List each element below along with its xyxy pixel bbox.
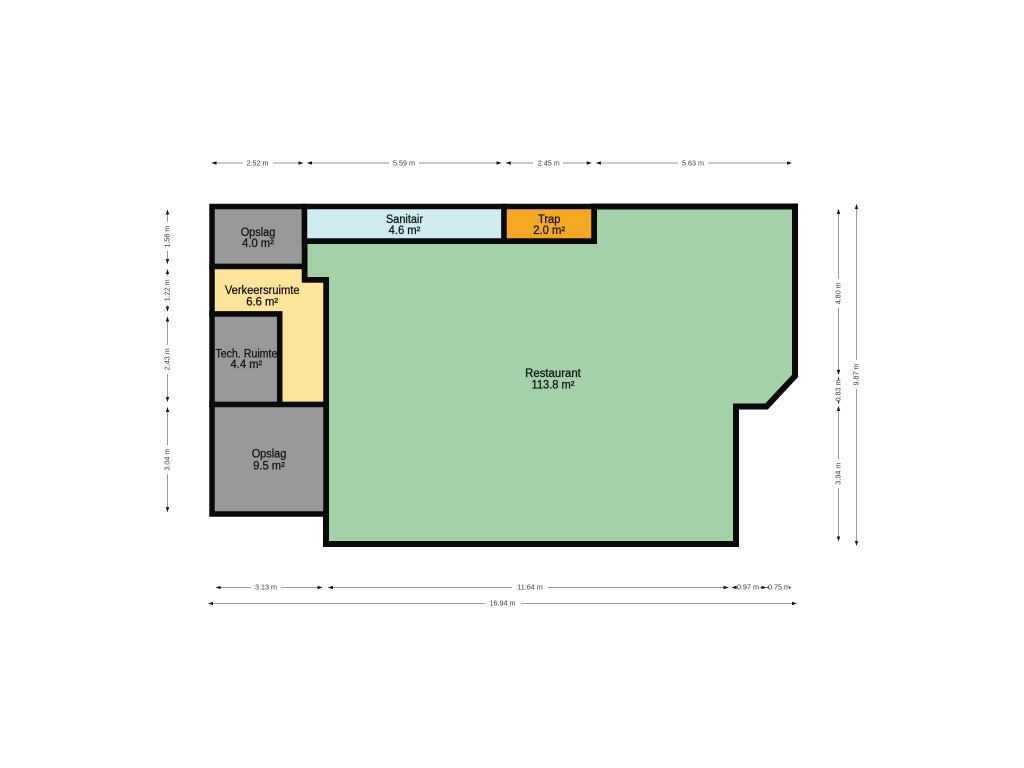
svg-text:0.83 m: 0.83 m xyxy=(834,379,843,401)
svg-text:113.8 m²: 113.8 m² xyxy=(532,380,575,392)
svg-text:Opslag: Opslag xyxy=(252,449,287,461)
svg-text:2.0 m²: 2.0 m² xyxy=(533,225,565,237)
svg-text:1.58 m: 1.58 m xyxy=(163,226,172,248)
svg-text:Restaurant: Restaurant xyxy=(525,368,581,380)
svg-text:1.22 m: 1.22 m xyxy=(163,279,172,301)
svg-text:9.5 m²: 9.5 m² xyxy=(253,460,285,472)
svg-text:5.63 m: 5.63 m xyxy=(682,159,704,168)
svg-text:2.43 m: 2.43 m xyxy=(163,348,172,370)
svg-text:16.94 m: 16.94 m xyxy=(490,599,516,608)
svg-text:4.6 m²: 4.6 m² xyxy=(389,225,421,237)
svg-text:4.0 m²: 4.0 m² xyxy=(242,238,274,250)
svg-text:5.59 m: 5.59 m xyxy=(393,159,415,168)
svg-text:4.4 m²: 4.4 m² xyxy=(231,359,263,371)
svg-text:6.6 m²: 6.6 m² xyxy=(246,296,278,308)
svg-text:0.97 m: 0.97 m xyxy=(737,583,759,592)
svg-text:Verkeersruimte: Verkeersruimte xyxy=(225,285,300,297)
svg-text:9.87 m: 9.87 m xyxy=(852,364,861,386)
svg-text:4.80 m: 4.80 m xyxy=(834,282,843,304)
svg-text:0.75 m: 0.75 m xyxy=(768,583,790,592)
svg-text:11.64 m: 11.64 m xyxy=(517,583,542,592)
svg-text:3.94 m: 3.94 m xyxy=(834,463,843,485)
svg-text:2.52 m: 2.52 m xyxy=(247,159,269,168)
svg-text:3.13 m: 3.13 m xyxy=(255,583,277,592)
svg-text:2.45 m: 2.45 m xyxy=(538,159,560,168)
svg-text:3.04 m: 3.04 m xyxy=(163,449,172,471)
